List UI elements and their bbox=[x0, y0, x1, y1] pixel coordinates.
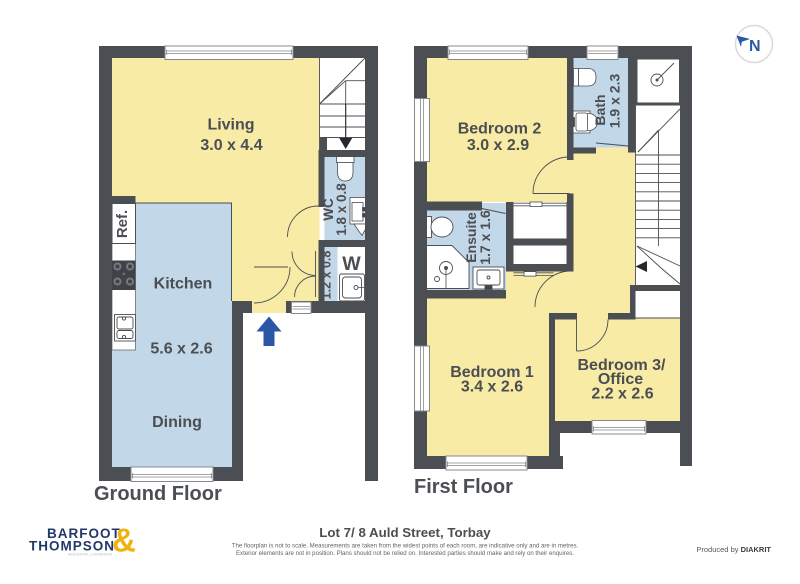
svg-text:Dining: Dining bbox=[152, 414, 202, 431]
svg-text:2.2 x 2.6: 2.2 x 2.6 bbox=[591, 386, 653, 403]
svg-text:Living: Living bbox=[207, 117, 254, 134]
svg-text:Ground Floor: Ground Floor bbox=[94, 483, 222, 505]
svg-text:Lot 7/ 8 Auld Street, Torbay: Lot 7/ 8 Auld Street, Torbay bbox=[319, 525, 491, 540]
svg-text:The floorplan is not to scale.: The floorplan is not to scale. Measureme… bbox=[232, 543, 579, 550]
svg-text:Kitchen: Kitchen bbox=[154, 276, 213, 293]
svg-text:N: N bbox=[749, 38, 761, 55]
svg-text:THOMPSON: THOMPSON bbox=[29, 539, 115, 554]
svg-text:Exterior elements are not in p: Exterior elements are not in position. P… bbox=[236, 550, 574, 557]
svg-text:1.8 x 0.8: 1.8 x 0.8 bbox=[334, 183, 349, 236]
svg-text:3.0 x 4.4: 3.0 x 4.4 bbox=[200, 137, 262, 154]
svg-text:&: & bbox=[112, 522, 136, 559]
svg-text:1.9 x 2.3: 1.9 x 2.3 bbox=[607, 74, 623, 129]
svg-text:Produced by DIAKRIT: Produced by DIAKRIT bbox=[696, 545, 771, 554]
svg-text:3.0 x 2.9: 3.0 x 2.9 bbox=[467, 137, 529, 154]
svg-text:Ref.: Ref. bbox=[114, 210, 131, 238]
svg-text:W: W bbox=[342, 253, 361, 275]
svg-text:First Floor: First Floor bbox=[414, 476, 513, 498]
svg-text:RESIDENTIAL | COMMERCIAL: RESIDENTIAL | COMMERCIAL bbox=[68, 553, 113, 557]
svg-text:3.4 x 2.6: 3.4 x 2.6 bbox=[461, 379, 523, 396]
svg-text:Bedroom 2: Bedroom 2 bbox=[458, 121, 542, 138]
svg-text:1.7 x 1.6: 1.7 x 1.6 bbox=[477, 210, 493, 265]
svg-text:5.6 x 2.6: 5.6 x 2.6 bbox=[150, 341, 212, 358]
